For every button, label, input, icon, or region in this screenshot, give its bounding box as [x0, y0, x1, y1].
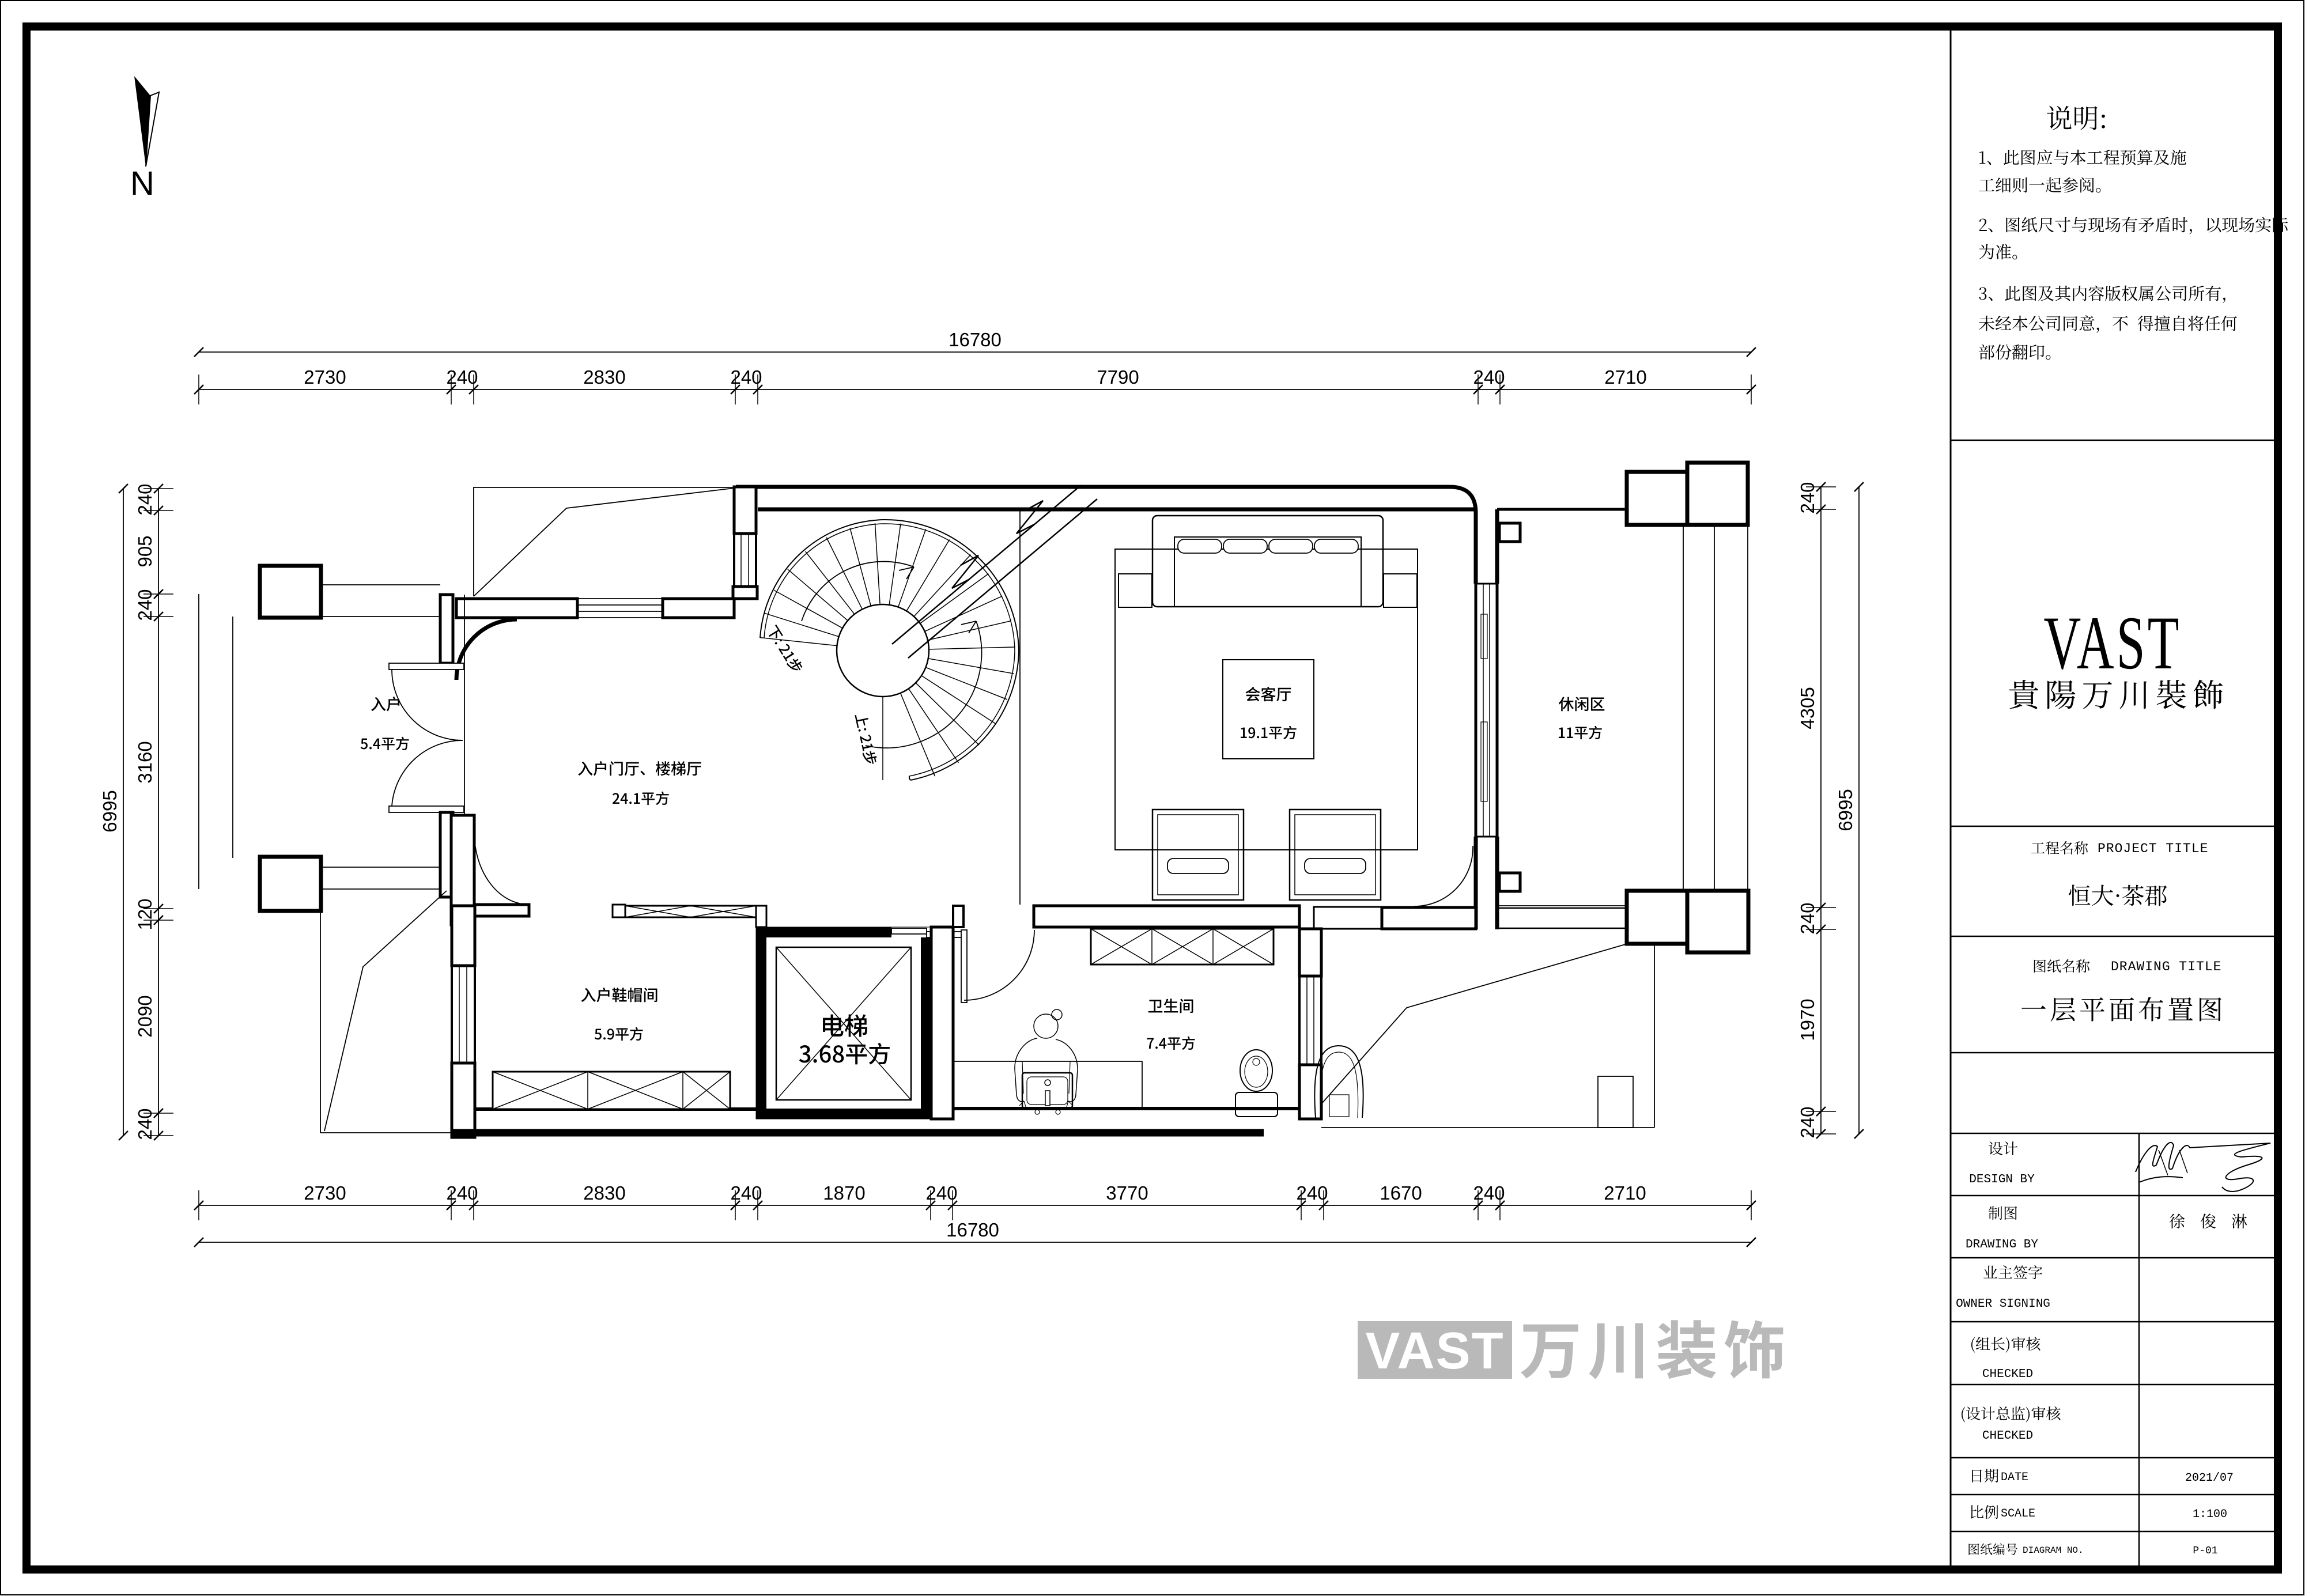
svg-text:1870: 1870 — [823, 1182, 865, 1204]
svg-text:CHECKED: CHECKED — [1982, 1368, 2033, 1381]
svg-text:1970: 1970 — [1797, 999, 1818, 1041]
svg-text:16780: 16780 — [949, 329, 1002, 350]
svg-text:120: 120 — [134, 898, 156, 930]
svg-text:6995: 6995 — [99, 790, 120, 832]
svg-text:DATE: DATE — [2001, 1471, 2028, 1484]
svg-text:6995: 6995 — [1835, 789, 1856, 831]
svg-text:240: 240 — [134, 483, 156, 515]
svg-text:240: 240 — [134, 589, 156, 621]
svg-text:240: 240 — [730, 366, 762, 388]
svg-text:2710: 2710 — [1604, 366, 1646, 388]
svg-text:2710: 2710 — [1604, 1182, 1646, 1204]
svg-text:240: 240 — [1473, 1182, 1505, 1204]
svg-text:240: 240 — [1797, 482, 1818, 513]
svg-text:2730: 2730 — [304, 1182, 346, 1204]
svg-text:PROJECT TITLE: PROJECT TITLE — [2098, 841, 2208, 856]
svg-text:4305: 4305 — [1797, 687, 1818, 729]
svg-text:1:100: 1:100 — [2193, 1508, 2227, 1521]
svg-text:240: 240 — [1473, 366, 1505, 388]
svg-text:DRAWING TITLE: DRAWING TITLE — [2111, 959, 2221, 974]
svg-text:2090: 2090 — [134, 995, 156, 1037]
svg-text:240: 240 — [925, 1182, 957, 1204]
svg-text:240: 240 — [1296, 1182, 1328, 1204]
svg-text:DRAWING BY: DRAWING BY — [1966, 1238, 2038, 1251]
svg-text:OWNER SIGNING: OWNER SIGNING — [1956, 1298, 2050, 1311]
svg-text:2021/07: 2021/07 — [2185, 1472, 2234, 1485]
svg-text:N: N — [130, 165, 154, 202]
svg-text:SCALE: SCALE — [2001, 1507, 2035, 1521]
svg-text:2830: 2830 — [583, 1182, 625, 1204]
svg-text:CHECKED: CHECKED — [1982, 1429, 2033, 1443]
svg-text:240: 240 — [1797, 1106, 1818, 1138]
svg-text:16780: 16780 — [946, 1219, 999, 1241]
svg-text:VAST: VAST — [1365, 1322, 1504, 1380]
svg-text:7790: 7790 — [1097, 366, 1139, 388]
svg-text:3160: 3160 — [134, 741, 156, 783]
svg-text:240: 240 — [134, 1108, 156, 1140]
svg-text:240: 240 — [1797, 902, 1818, 934]
svg-text:2830: 2830 — [583, 366, 625, 388]
svg-text:3770: 3770 — [1106, 1182, 1148, 1204]
svg-text:VAST: VAST — [2043, 601, 2181, 685]
svg-text:905: 905 — [134, 535, 156, 567]
svg-text:240: 240 — [446, 1182, 478, 1204]
svg-text:P-01: P-01 — [2193, 1545, 2217, 1557]
svg-text:DIAGRAM NO.: DIAGRAM NO. — [2023, 1545, 2084, 1556]
svg-text:240: 240 — [446, 366, 478, 388]
svg-text:240: 240 — [730, 1182, 762, 1204]
svg-text:2730: 2730 — [304, 366, 346, 388]
svg-text:1670: 1670 — [1380, 1182, 1422, 1204]
svg-text:DESIGN BY: DESIGN BY — [1969, 1173, 2035, 1186]
